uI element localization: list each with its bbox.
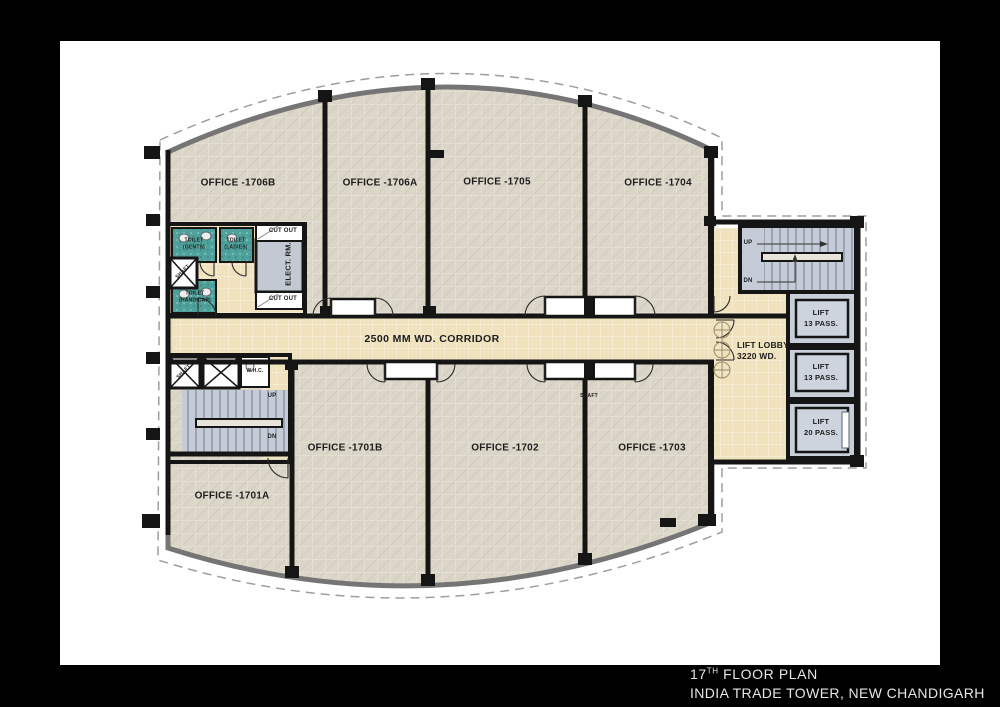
cutout-bottom [256, 292, 303, 309]
lobby-column-symbols [714, 322, 730, 378]
floor-plan-drawing [0, 0, 1000, 707]
floor-rest: FLOOR PLAN [719, 666, 818, 682]
right-stair-block [740, 226, 856, 292]
cutout-top [256, 224, 303, 241]
lift-car-3 [796, 408, 848, 452]
lift-bank [788, 292, 856, 458]
title-line1: 17TH FLOOR PLAN [690, 666, 985, 682]
lift-car-2 [796, 354, 848, 391]
title-block: 17TH FLOOR PLAN INDIA TRADE TOWER, NEW C… [690, 666, 985, 701]
floor-suffix: TH [707, 666, 719, 675]
elect-room [256, 240, 303, 292]
lift-car-1 [796, 300, 848, 337]
floor-number: 17 [690, 666, 707, 682]
shaft-box-upper [170, 258, 197, 288]
title-line2: INDIA TRADE TOWER, NEW CHANDIGARH [690, 685, 985, 701]
page: OFFICE -1706B OFFICE -1706A OFFICE -1705… [0, 0, 1000, 707]
